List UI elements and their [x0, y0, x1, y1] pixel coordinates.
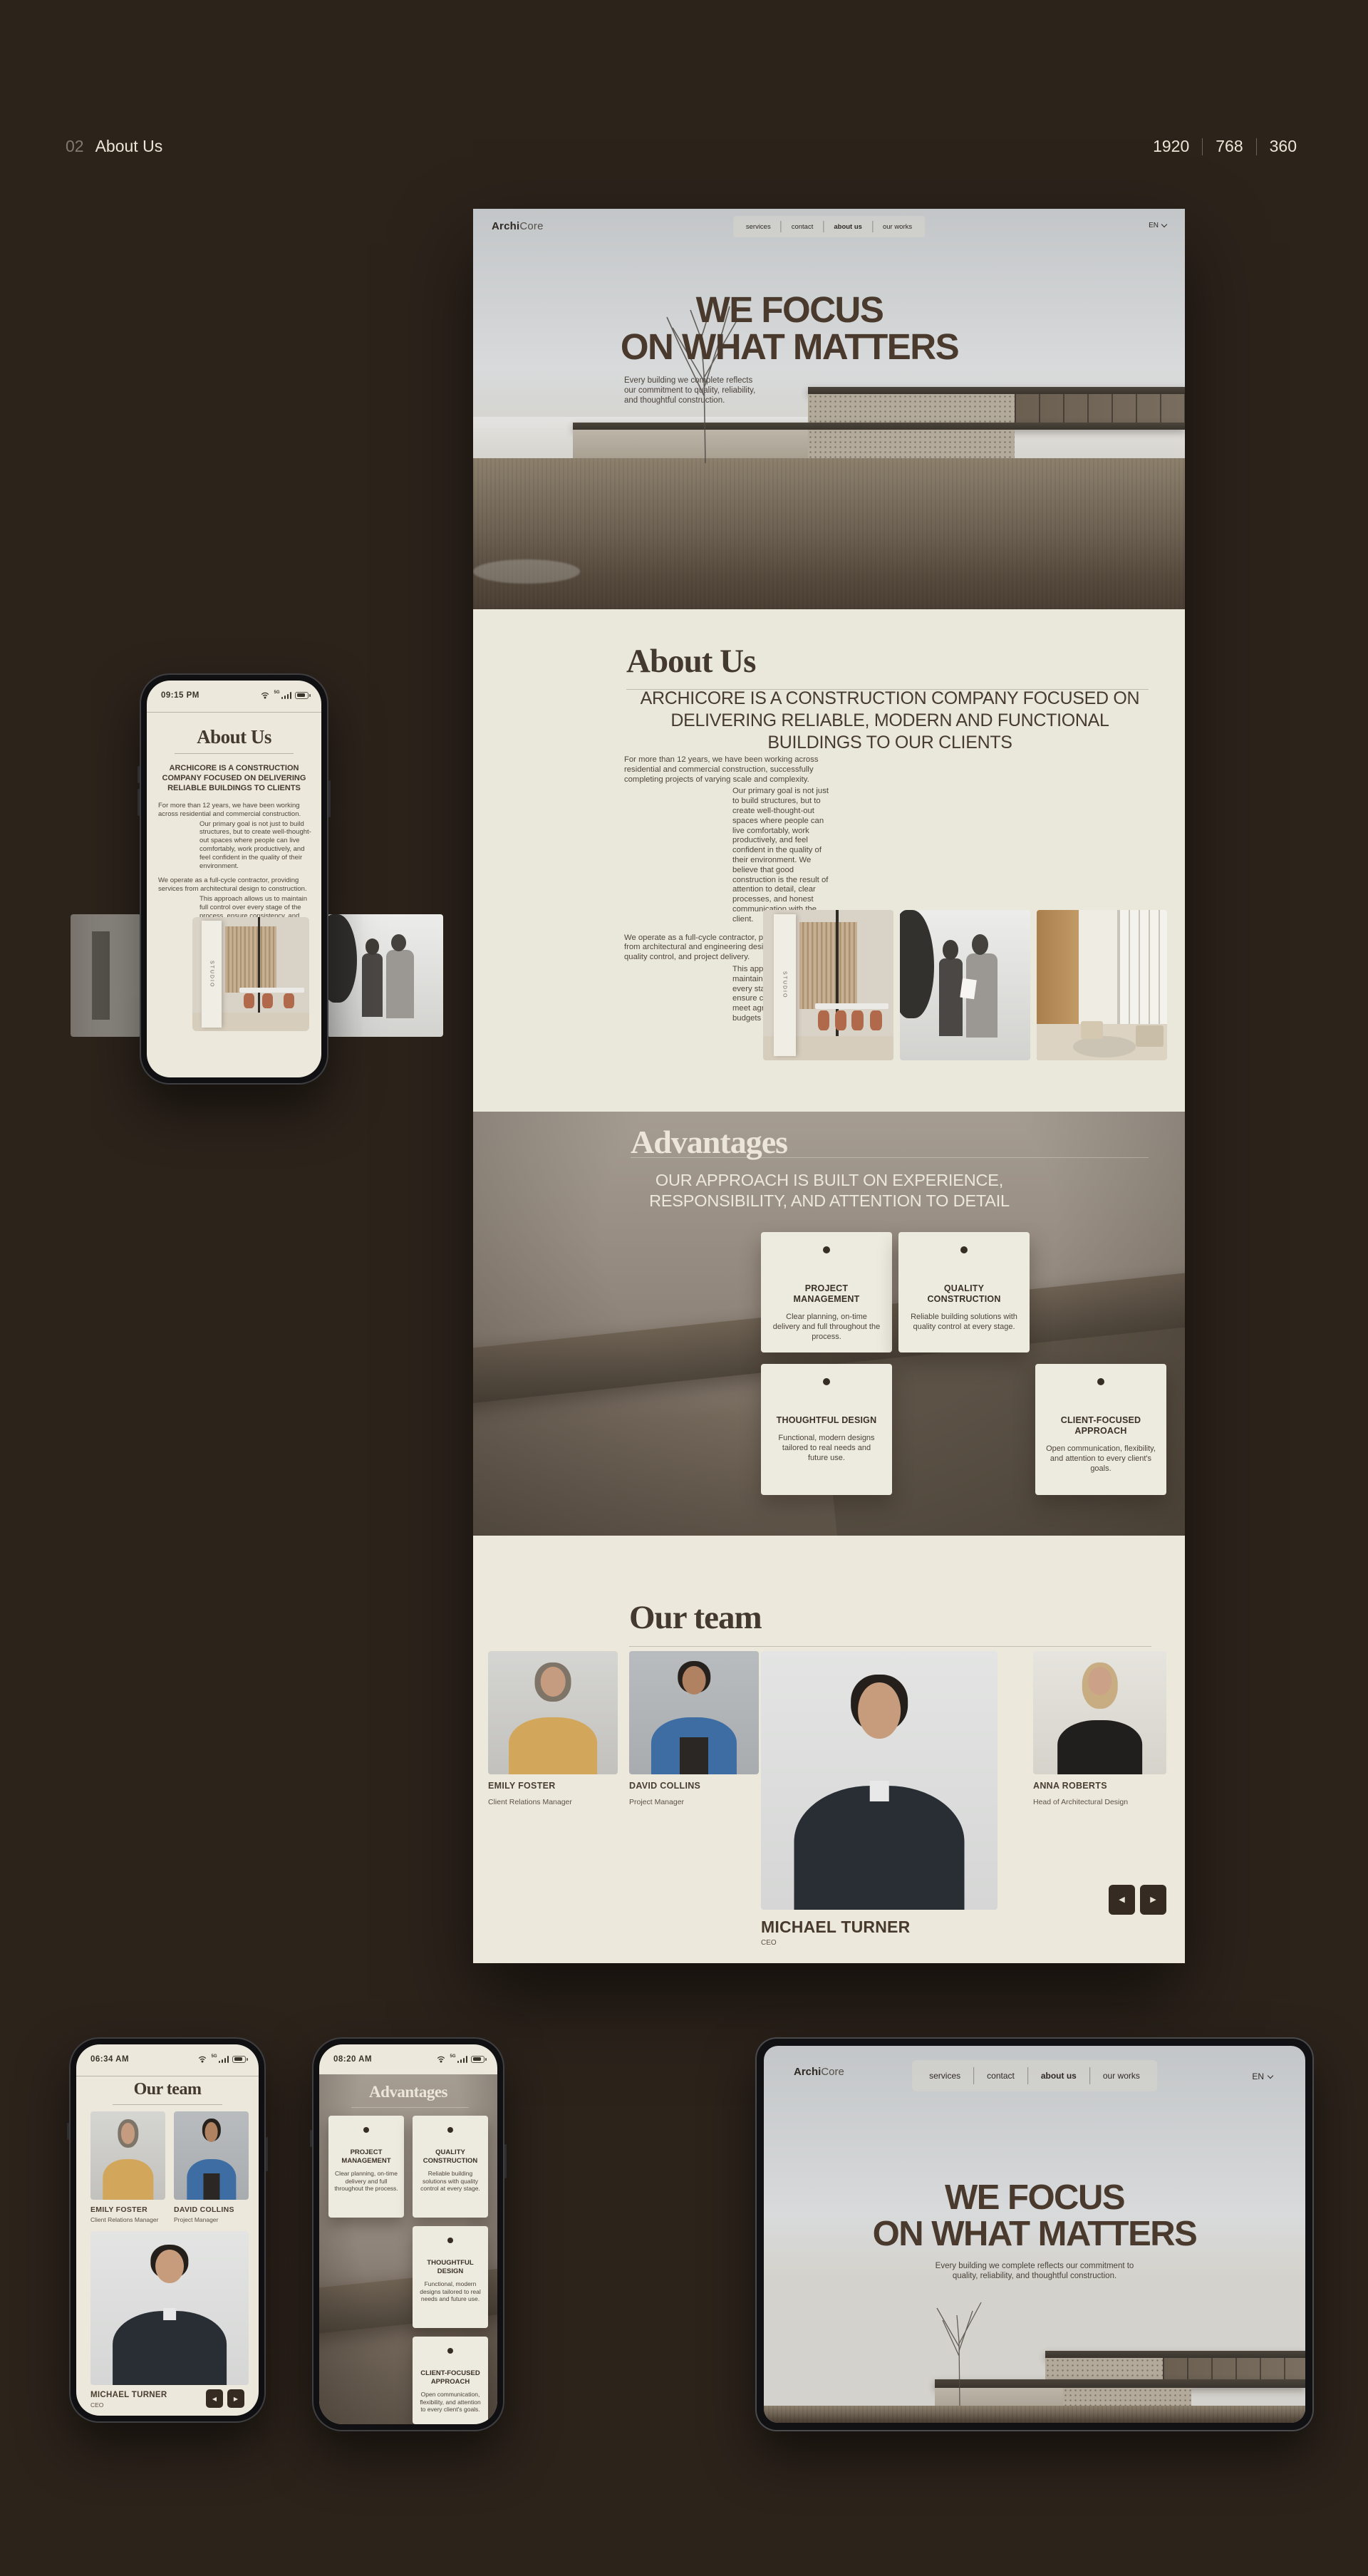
portrait [90, 2231, 249, 2385]
bullet-dot [823, 1246, 830, 1253]
advantage-card-client-focused: CLIENT-FOCUSED APPROACH Open communicati… [1035, 1364, 1166, 1495]
network-label: 5G [450, 2054, 455, 2059]
advantages-subheading: OUR APPROACH IS BUILT ON EXPERIENCE, RES… [594, 1170, 1064, 1211]
building-glass-upper [1015, 394, 1185, 423]
mobile-about-paragraphs: For more than 12 years, we have been wor… [158, 802, 312, 929]
status-bar: 08:20 AM 5G [319, 2044, 497, 2076]
person-silhouette [362, 953, 383, 1017]
nav-item-contact[interactable]: contact [782, 223, 824, 231]
card-title: CLIENT-FOCUSED APPROACH [1046, 1415, 1156, 1437]
window-wall [1117, 910, 1167, 1024]
language-selector[interactable]: EN [1149, 222, 1166, 229]
gallery-image-office-lounge [1037, 910, 1167, 1060]
power-button [328, 780, 331, 817]
advantage-card-quality-construction: QUALITY CONSTRUCTION Reliable building s… [413, 2116, 488, 2218]
status-icons: 5G [197, 2055, 246, 2063]
member-role: Client Relations Manager [488, 1798, 572, 1806]
about-gallery: STUDIO [763, 910, 1167, 1060]
prev-arrow-icon: ◀ [212, 2396, 217, 2402]
advantages-section: Advantages OUR APPROACH IS BUILT ON EXPE… [473, 1112, 1185, 1536]
logo-bold: Archi [492, 220, 519, 232]
signal-icon [457, 2056, 468, 2063]
chevron-down-icon [1268, 2072, 1273, 2078]
about-section: About Us ARCHICORE IS A CONSTRUCTION COM… [473, 609, 1185, 1112]
member-role: Client Relations Manager [90, 2216, 158, 2223]
pond [473, 559, 580, 584]
chair [835, 1010, 846, 1030]
bullet-dot [960, 1246, 968, 1253]
chair [284, 993, 294, 1008]
heading-rule [113, 2104, 222, 2105]
about-paragraph: Our primary goal is not just to build st… [732, 787, 836, 924]
main-nav: services contact about us our works [912, 2060, 1157, 2091]
member-name: EMILY FOSTER [90, 2205, 147, 2214]
heading-rule [175, 753, 294, 754]
card-title: PROJECT MANAGEMENT [772, 1283, 881, 1305]
portrait [1033, 1651, 1166, 1774]
shirt [203, 2173, 219, 2200]
volume-button [310, 2130, 312, 2147]
language-selector[interactable]: EN [1252, 2071, 1273, 2081]
building-roof-upper [808, 387, 1185, 394]
face [683, 1666, 706, 1695]
prev-arrow-icon: ◀ [1119, 1896, 1124, 1904]
language-label: EN [1149, 222, 1159, 229]
page-index: 02 [66, 137, 84, 156]
building-glass-upper [1163, 2358, 1305, 2379]
hero-title: WE FOCUSON WHAT MATTERS [764, 2180, 1305, 2252]
about-subheading: ARCHICORE IS A CONSTRUCTION COMPANY FOCU… [630, 688, 1150, 754]
carousel-strip-left [71, 914, 141, 1037]
nav-item-about-us[interactable]: about us [1028, 2071, 1089, 2081]
hero-title-line2: ON WHAT MATTERS [621, 326, 958, 367]
about-heading: About Us [626, 642, 755, 681]
about-paragraph: For more than 12 years, we have been wor… [624, 755, 836, 785]
battery-icon [232, 2056, 246, 2063]
volume-button [138, 789, 140, 816]
hero-title-line1: WE FOCUS [696, 289, 883, 330]
building-perforated-wall-lower [808, 430, 1015, 460]
status-bar: 09:15 PM 5G [147, 681, 321, 712]
member-role: Head of Architectural Design [1033, 1798, 1128, 1806]
volume-button [138, 766, 140, 783]
conference-table [239, 988, 305, 992]
advantage-card-project-management: PROJECT MANAGEMENT Clear planning, on-ti… [328, 2116, 404, 2218]
member-role: CEO [761, 1939, 777, 1947]
team-section: Our team EMILY FOSTER Client Relations M… [473, 1536, 1185, 1963]
chair [851, 1010, 863, 1030]
hero-title-line1: WE FOCUS [945, 2178, 1124, 2217]
portrait [90, 2111, 165, 2200]
face [121, 2123, 135, 2144]
grass-field [764, 2406, 1305, 2423]
hero-description: Every building we complete reflects our … [624, 376, 767, 405]
studio-sign: STUDIO [782, 971, 787, 998]
doorway [92, 931, 110, 1020]
phone-screen: 09:15 PM 5G About Us ARCHICORE IS A CONS… [147, 681, 321, 1077]
studio-column: STUDIO [202, 921, 222, 1028]
phone-mockup-team: 06:34 AM 5G Our team EMILY FOSTER Client… [69, 2037, 266, 2423]
team-photo-david-collins [629, 1651, 759, 1774]
card-text: Open communication, flexibility, and att… [418, 2391, 482, 2414]
gallery-image-team-discussion [900, 910, 1030, 1060]
divider [1202, 138, 1203, 155]
tablet-mockup: ArchiCore services contact about us our … [755, 2037, 1314, 2431]
mobile-advantages-heading: Advantages [319, 2083, 497, 2101]
network-label: 5G [274, 690, 279, 695]
signal-icon [219, 2056, 229, 2063]
shirt [680, 1737, 708, 1774]
bw-photo [327, 914, 443, 1037]
page-title: About Us [95, 137, 163, 156]
team-photo-anna-roberts [1033, 1651, 1166, 1774]
face [541, 1667, 566, 1697]
chair [818, 1010, 829, 1030]
nav-item-about-us[interactable]: about us [824, 223, 872, 231]
mobile-about-heading: About Us [147, 726, 321, 748]
heading-rule [351, 2107, 469, 2108]
carousel-prev-button[interactable]: ◀ [1109, 1885, 1135, 1915]
card-title: QUALITY CONSTRUCTION [418, 2148, 482, 2165]
portrait [488, 1651, 618, 1774]
wood-slat-wall [225, 926, 276, 993]
document [960, 978, 977, 1000]
member-role: Project Manager [629, 1798, 684, 1806]
page-label: 02 About Us [66, 137, 162, 156]
card-text: Functional, modern designs tailored to r… [772, 1433, 881, 1463]
mobile-gallery-image-studio: STUDIO [192, 917, 309, 1031]
collar [163, 2308, 176, 2320]
breakpoint-list: 1920 768 360 [1153, 137, 1297, 156]
card-text: Reliable building solutions with quality… [909, 1312, 1019, 1332]
wifi-icon [436, 2055, 446, 2063]
person-silhouette [972, 934, 989, 956]
desktop-mockup: ArchiCore services contact about us our … [473, 209, 1185, 1963]
carousel-strip-right [327, 914, 443, 1037]
nav-item-services[interactable]: services [736, 223, 781, 231]
breakpoint-1920: 1920 [1153, 137, 1189, 156]
plant-silhouette [327, 914, 357, 1003]
person-silhouette [366, 938, 380, 954]
bullet-dot [1097, 1378, 1104, 1385]
carousel-next-button[interactable]: ▶ [227, 2389, 244, 2408]
about-paragraph: For more than 12 years, we have been wor… [158, 802, 312, 819]
wood-slat-wall [799, 922, 857, 1009]
status-time: 06:34 AM [90, 2055, 129, 2064]
site-logo: ArchiCore [492, 220, 544, 232]
status-icons: 5G [260, 691, 309, 699]
gallery-image-studio: STUDIO [763, 910, 893, 1060]
studio-sign: STUDIO [209, 961, 214, 988]
bullet-dot [447, 2238, 453, 2243]
next-arrow-icon: ▶ [234, 2396, 238, 2402]
chevron-down-icon [1161, 222, 1167, 227]
card-title: QUALITY CONSTRUCTION [909, 1283, 1019, 1305]
heading-rule [631, 1157, 1149, 1158]
person-silhouette [939, 958, 963, 1037]
portrait [174, 2111, 249, 2200]
site-header: ArchiCore services contact about us our … [473, 209, 1185, 243]
torso [509, 1717, 597, 1774]
conference-table [815, 1003, 888, 1009]
about-paragraph: Our primary goal is not just to build st… [199, 820, 312, 871]
card-text: Functional, modern designs tailored to r… [418, 2280, 482, 2303]
power-button [504, 2144, 507, 2178]
member-role: Project Manager [174, 2216, 218, 2223]
signal-icon [281, 692, 292, 699]
face [858, 1682, 901, 1739]
portrait [761, 1651, 997, 1910]
card-text: Clear planning, on-time delivery and ful… [772, 1312, 881, 1342]
plant-silhouette [900, 910, 934, 1018]
building-roof-upper [1045, 2351, 1305, 2358]
team-photo-emily-foster [90, 2111, 165, 2200]
face [204, 2122, 218, 2143]
wifi-icon [197, 2055, 207, 2063]
bullet-dot [363, 2127, 369, 2133]
breakpoint-768: 768 [1216, 137, 1243, 156]
battery-icon [471, 2056, 484, 2063]
logo-bold: Archi [794, 2066, 821, 2078]
member-name: DAVID COLLINS [174, 2205, 234, 2214]
team-photo-david-collins [174, 2111, 249, 2200]
wifi-icon [260, 691, 270, 699]
divider [147, 712, 321, 713]
bullet-dot [447, 2348, 453, 2354]
logo-light: Core [519, 220, 543, 232]
divider [1256, 138, 1257, 155]
about-paragraph: We operate as a full-cycle contractor, p… [158, 876, 312, 894]
hero-section: ArchiCore services contact about us our … [473, 209, 1185, 609]
phone-mockup-advantages: 08:20 AM 5G Advantages PROJECT MANAGEMEN… [312, 2037, 504, 2431]
carousel-next-button[interactable]: ▶ [1140, 1885, 1166, 1915]
mobile-team-heading: Our team [76, 2080, 259, 2099]
tablet-screen: ArchiCore services contact about us our … [764, 2046, 1305, 2423]
portrait [629, 1651, 759, 1774]
language-label: EN [1252, 2071, 1264, 2081]
hero-title-line2: ON WHAT MATTERS [873, 2215, 1197, 2253]
studio-column: STUDIO [774, 914, 796, 1055]
bare-tree [924, 2281, 995, 2406]
face [155, 2250, 184, 2284]
building-perforated-wall [1045, 2358, 1163, 2379]
site-logo: ArchiCore [794, 2066, 844, 2078]
main-nav: services contact about us our works [733, 216, 925, 237]
divider [76, 2076, 259, 2076]
breakpoint-360: 360 [1270, 137, 1297, 156]
person-silhouette [943, 940, 958, 959]
sofa [1081, 1021, 1103, 1039]
torso [113, 2311, 227, 2385]
member-name: MICHAEL TURNER [90, 2391, 167, 2399]
card-text: Open communication, flexibility, and att… [1046, 1444, 1156, 1474]
advantage-card-quality-construction: QUALITY CONSTRUCTION Reliable building s… [898, 1232, 1030, 1352]
volume-button [67, 2123, 69, 2140]
person-silhouette [391, 934, 406, 951]
next-arrow-icon: ▶ [1150, 1896, 1156, 1904]
member-name: MICHAEL TURNER [761, 1918, 910, 1937]
hero-description: Every building we complete reflects our … [931, 2261, 1138, 2281]
bullet-dot [447, 2127, 453, 2133]
building-perforated-wall [808, 394, 1015, 423]
advantage-card-client-focused: CLIENT-FOCUSED APPROACH Open communicati… [413, 2337, 488, 2424]
member-name: DAVID COLLINS [629, 1781, 700, 1791]
card-text: Clear planning, on-time delivery and ful… [334, 2170, 398, 2193]
person-silhouette [386, 950, 414, 1018]
torso [1057, 1720, 1143, 1774]
rug [1073, 1036, 1136, 1057]
card-title: THOUGHTFUL DESIGN [772, 1415, 881, 1426]
nav-item-contact[interactable]: contact [974, 2071, 1027, 2081]
face [1088, 1667, 1112, 1695]
nav-item-our-works[interactable]: our works [873, 223, 922, 231]
chair [262, 993, 273, 1008]
member-role: CEO [90, 2401, 103, 2409]
logo-light: Core [821, 2066, 844, 2078]
torso [794, 1786, 964, 1910]
carousel-prev-button[interactable]: ◀ [206, 2389, 223, 2408]
advantage-card-project-management: PROJECT MANAGEMENT Clear planning, on-ti… [761, 1232, 892, 1352]
battery-icon [295, 692, 309, 699]
team-photo-emily-foster [488, 1651, 618, 1774]
nav-item-services[interactable]: services [916, 2071, 973, 2081]
sofa [1136, 1025, 1163, 1047]
phone-screen: 08:20 AM 5G Advantages PROJECT MANAGEMEN… [319, 2044, 497, 2424]
nav-item-our-works[interactable]: our works [1090, 2071, 1153, 2081]
status-time: 08:20 AM [333, 2055, 372, 2064]
status-bar: 06:34 AM 5G [76, 2044, 259, 2076]
team-heading: Our team [629, 1598, 762, 1637]
status-icons: 5G [436, 2055, 484, 2063]
advantages-heading: Advantages [631, 1123, 787, 1161]
heading-rule [629, 1646, 1151, 1647]
grass-field [473, 458, 1185, 609]
hero-title: WE FOCUSON WHAT MATTERS [613, 291, 966, 366]
phone-screen: 06:34 AM 5G Our team EMILY FOSTER Client… [76, 2044, 259, 2416]
chair [870, 1010, 881, 1030]
team-photo-michael-turner [761, 1651, 997, 1910]
torso [103, 2159, 153, 2200]
member-name: ANNA ROBERTS [1033, 1781, 1107, 1791]
card-text: Reliable building solutions with quality… [418, 2170, 482, 2193]
advantage-card-thoughtful-design: THOUGHTFUL DESIGN Functional, modern des… [761, 1364, 892, 1495]
power-button [266, 2137, 268, 2171]
advantage-card-thoughtful-design: THOUGHTFUL DESIGN Functional, modern des… [413, 2226, 488, 2328]
card-title: THOUGHTFUL DESIGN [418, 2259, 482, 2275]
status-time: 09:15 PM [161, 691, 199, 700]
network-label: 5G [211, 2054, 217, 2059]
mobile-about-subheading: ARCHICORE IS A CONSTRUCTION COMPANY FOCU… [157, 763, 311, 793]
collar [870, 1781, 889, 1801]
bullet-dot [823, 1378, 830, 1385]
card-title: CLIENT-FOCUSED APPROACH [418, 2369, 482, 2386]
card-title: PROJECT MANAGEMENT [334, 2148, 398, 2165]
phone-mockup-about: 09:15 PM 5G About Us ARCHICORE IS A CONS… [140, 673, 328, 1085]
chair [244, 993, 254, 1008]
member-name: EMILY FOSTER [488, 1781, 556, 1791]
team-photo-michael-turner [90, 2231, 249, 2385]
